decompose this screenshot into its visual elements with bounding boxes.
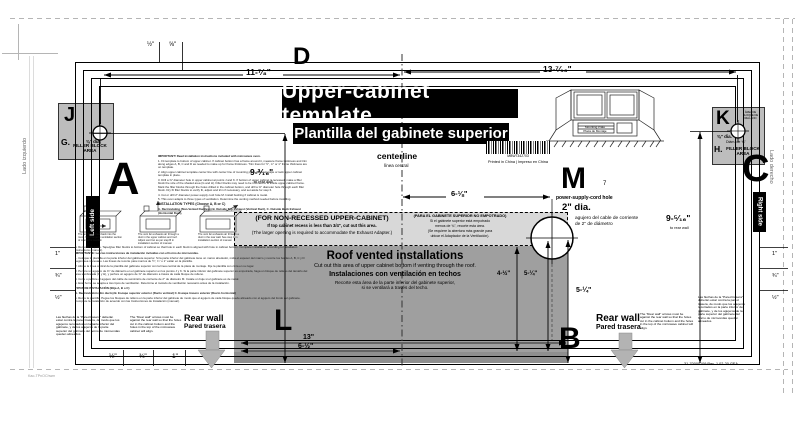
diagram-caption-a: The unit blows heat back into the room. … [78,234,122,243]
rear-wall-label-left-en: Rear wall [184,313,224,323]
instruction-step-1: 1. Fit template to bottom of upper cabin… [158,160,308,170]
roof-es2: si se ventilará a través del techo. [285,285,505,290]
rear-wall-arrow-left [198,331,225,368]
rear-wall-label-right-en: Rear wall [596,313,640,324]
left-mark-34: ¾" [55,273,62,279]
top-mark-half: ½" [147,42,154,49]
edge-letter-a: A [107,154,140,204]
instruction-step-2: 2. Align upper cabinet template center l… [158,171,308,178]
strip-line4-es: ubicar el Adaptador de la Ventilación). [406,235,514,239]
bottom-mark-half: ½" [109,353,117,360]
rear-wall-note-en-left: The "Rear wall" arrows must be against t… [130,316,182,333]
instructions-important: IMPORTANT! Read installation instruction… [158,155,308,158]
lado-derecho-label: Lado derecho [768,150,774,194]
h-filler-block-label: FILLER BLOCK AREA [723,146,763,156]
instruction-step-3: 3. Drill a ⅜" diameter hole in upper cab… [158,179,308,192]
dim-9-516-note: to rear wall [670,226,689,230]
top-mark-58: ⅝" [169,42,176,49]
lado-izquierdo-label: Lado izquierdo [22,128,28,174]
left-mark-1: 1" [55,251,60,257]
installation-types-title: INSTALLATION TYPES (Choose A, B or C) [158,203,308,207]
installation-types: A. Recirculating (Non-Vented Ductless) B… [158,208,308,215]
edge-letter-b: B [559,322,581,356]
instructions-importante: IMPORTANTE: Lea las instrucciones de ins… [75,252,313,255]
page-title: Upper-cabinet template [282,80,518,128]
hole-letter-j: J [64,104,75,126]
title-bar: Upper-cabinet template [282,89,518,118]
diagram-caption-b: The vent fan exhausts air through a duct… [138,234,184,246]
barcode-number: MBW7342703 [486,155,550,159]
bottom-mark-1: 1" [172,353,178,360]
right-mark-half: ½" [772,295,779,301]
tipos-instalacion-title: TIPOS DE INSTALACIÓN (Elija A, B o C) [75,287,313,290]
bottom-mark-34: ¾" [139,353,147,360]
instruction-es-step-1: 1. Coloque la plantilla en la parte infe… [75,257,313,264]
instruction-es-step-6: 6. Retire la plantilla. Pegue los bloque… [75,297,313,304]
diagram-caption-c: The vent fan exhausts air through a duct… [198,234,242,243]
right-mark-1: 1" [772,251,777,257]
strip-title-es: (PARA EL GABINETE SUPERIOR NO EMPOTRADO) [406,214,514,218]
m-step-number: 7 [603,181,606,188]
rear-wall-note-es-right: Las flechas de la "Pared trasera" deberá… [698,296,748,324]
rear-wall-label-right-es: Pared trasera [596,324,641,332]
instruction-es-step-5: 5. Este horno se adapta a tres tipos de … [75,282,313,285]
block-letter-g: G. [61,138,70,148]
centerline-label: centerline [377,152,417,162]
rear-wall-arrow-right [611,333,638,368]
dim-9-516: 9-⁵⁄₁₆" [666,214,690,224]
right-side-box: Right side [753,192,766,232]
g-filler-block-label: FILLER BLOCK AREA [70,143,110,153]
rear-wall-note-en-right: The "Rear wall" arrows must be against t… [640,313,694,330]
barcode [486,141,550,154]
instruction-step-5: 5. This oven adapts to three types of ve… [158,198,308,201]
subtitle-bar: Plantilla del gabinete superior [293,123,509,144]
mounting-plate-label-es: Placa de Montaje [570,130,620,134]
instruction-step-4: 4. Cut or drill 2" diameter power-supply… [158,194,308,197]
power-cord-hole-label: power-supply-cord hole [556,196,613,202]
dim-13: 13" [303,334,314,342]
rear-wall-note-es-left: Las flechas de la "Pared trasera" deberá… [56,316,120,337]
left-mark-half: ½" [55,295,62,301]
roof-title-es: Instalaciones con ventilación en techos [285,271,505,279]
mounting-plate-label: Mounting Plate Placa de Montaje [570,126,620,133]
dim-6-12: 6-½" [298,343,313,351]
corner-note: Kao-TPnOChwm [28,374,55,378]
centerline-label-es: línea central [384,163,409,168]
template-page: Upper-cabinet template Plantilla del gab… [0,0,802,424]
dim-5-14-outer: 5-¼" [576,287,591,295]
power-cord-hole-dia-es1: agujero del cable de corriente [575,216,638,221]
template-linework [0,0,802,424]
rear-wall-label-left-es: Pared trasera [184,323,226,330]
hole-letter-k: K [716,108,730,129]
block-letter-h: H. [714,145,723,155]
instruction-es-step-3: 3. Perfore un agujero de ⅜" de diámetro … [75,270,313,277]
k-hole-diameter-es: Diám. de ⅜" [726,140,746,144]
roof-title: Roof vented installations [285,250,505,263]
tipos-instalacion: A. Recirculación (Sin ducto) B. Escape s… [75,292,313,295]
k-hole-diameter: ⅜" dia. [717,134,732,139]
instructions-en: IMPORTANT! Read installation instruction… [158,155,308,216]
edge-letter-d: D [293,44,310,71]
instruction-es-step-4: 4. Corte o perfore el agujero del cable … [75,278,313,281]
instructions-es: IMPORTANTE: Lea las instrucciones de ins… [75,252,313,305]
right-side-label: Right side [757,197,763,226]
right-mark-34: ¾" [772,273,779,279]
k-area-es-label: ÁREA DE BLOQUE DE RELLENO [740,111,761,120]
cabinet-illustration [546,90,664,147]
left-side-label: Left side [89,209,96,236]
roof-letter-l: L [274,304,292,338]
instruction-es-step-2: 2. Alinee la línea central de la plantil… [75,265,313,268]
page-subtitle: Plantilla del gabinete superior [294,125,507,142]
printed-note: Printed in China | Impreso en China [472,160,564,164]
dim-13-716: 13-⁷⁄₁₆" [543,65,572,75]
strip-line1-en: If top cabinet recess is less than 3/4",… [242,224,402,229]
power-cord-hole-dia: 2" dia. [562,203,591,214]
power-cord-hole-dia-es2: de 2" de diámetro [575,222,613,227]
hole-letter-m: M [561,162,586,196]
dim-5-14-inner: 5-¼" [524,271,537,278]
dim-11-78: 11-⁷⁄₈" [246,68,271,78]
strip-line2-en: (The larger opening is required to accom… [236,230,408,235]
part-number-footer: 31-70000109 Rev. 1 02-20 GEA [684,362,738,366]
dim-6-18: 6-⅛" [451,190,467,198]
